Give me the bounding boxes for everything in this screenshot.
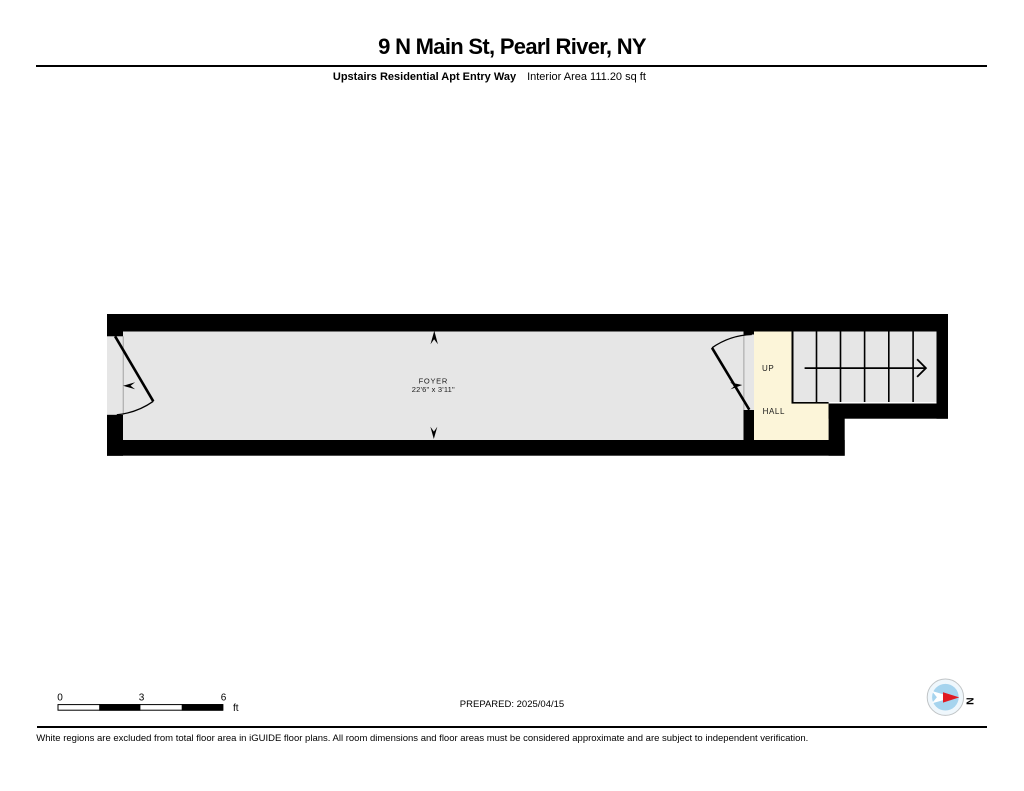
svg-text:N: N <box>963 697 975 705</box>
